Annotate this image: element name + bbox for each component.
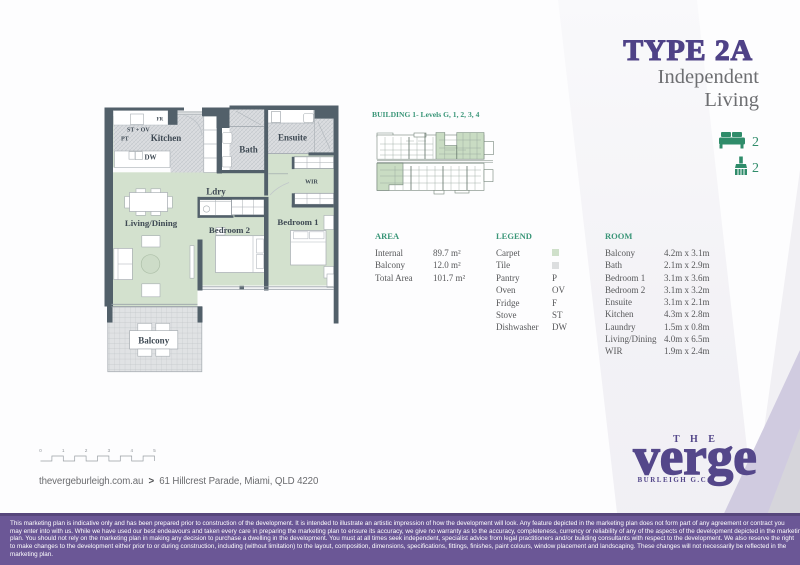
svg-text:Bedroom 1: Bedroom 1 (277, 217, 318, 227)
svg-text:2: 2 (752, 161, 759, 176)
svg-text:Living/Dining: Living/Dining (125, 218, 178, 228)
svg-text:0: 0 (39, 448, 42, 453)
svg-text:Bath: Bath (239, 145, 258, 155)
svg-text:Ldry: Ldry (206, 187, 226, 197)
svg-text:Bedroom 2: Bedroom 2 (209, 225, 251, 235)
svg-text:ST + OV: ST + OV (127, 128, 150, 134)
svg-text:DW: DW (145, 154, 157, 162)
svg-text:WIR: WIR (305, 180, 318, 186)
svg-text:Kitchen: Kitchen (151, 133, 182, 143)
svg-text:2: 2 (752, 135, 759, 150)
svg-text:Balcony: Balcony (138, 336, 170, 346)
svg-text:PT: PT (121, 137, 129, 143)
svg-text:Ensuite: Ensuite (278, 133, 307, 143)
svg-text:1: 1 (62, 448, 65, 453)
svg-text:FR: FR (157, 118, 164, 123)
svg-text:3: 3 (108, 448, 111, 453)
svg-text:2: 2 (85, 448, 88, 453)
svg-text:5: 5 (153, 448, 156, 453)
svg-text:4: 4 (130, 448, 133, 453)
